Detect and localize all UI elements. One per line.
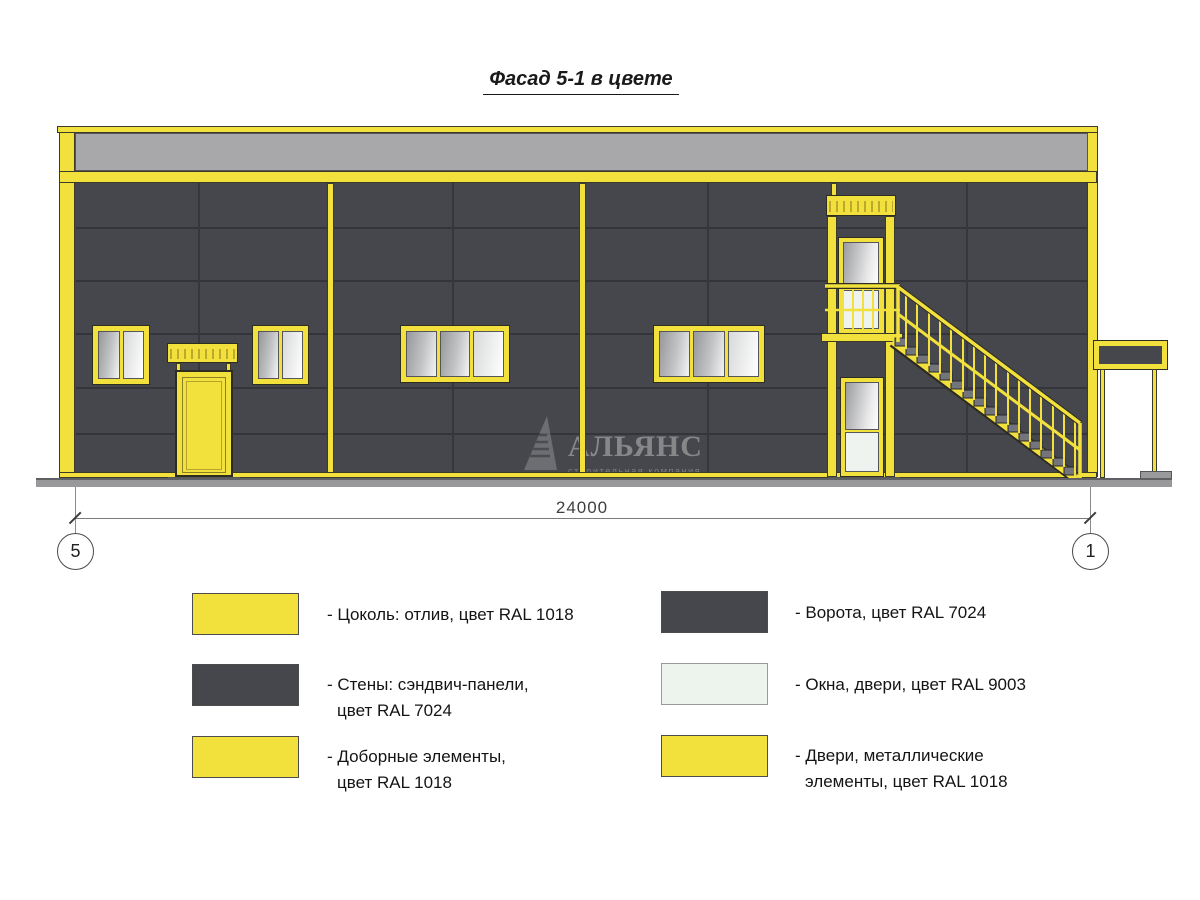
window-pane <box>693 331 724 377</box>
axis-bubble-1: 1 <box>1072 533 1109 570</box>
roof-cap <box>57 126 1098 133</box>
dimension-value: 24000 <box>482 498 682 518</box>
window-3pane <box>653 325 765 383</box>
legend-line: - Ворота, цвет RAL 7024 <box>795 600 986 626</box>
axis-bubble-5: 5 <box>57 533 94 570</box>
trim-strip <box>327 183 334 477</box>
legend-swatch-doors <box>661 735 768 777</box>
side-canopy <box>1094 341 1167 369</box>
side-canopy-post <box>1100 369 1105 478</box>
window-pane <box>123 331 145 379</box>
extension-line-left <box>75 487 76 533</box>
legend-swatch-windows <box>661 663 768 705</box>
axis-number: 1 <box>1085 541 1095 562</box>
entrance-door <box>175 370 233 477</box>
window-3pane <box>400 325 510 383</box>
extension-line-right <box>1090 487 1091 533</box>
entrance-canopy <box>167 343 238 363</box>
legend-label-windows: - Окна, двери, цвет RAL 9003 <box>795 672 1026 698</box>
legend-label-gates: - Ворота, цвет RAL 7024 <box>795 600 986 626</box>
window-pane <box>728 331 759 377</box>
legend-line: элементы, цвет RAL 1018 <box>805 769 1008 795</box>
window-pane <box>440 331 471 377</box>
trim-strip <box>579 183 586 477</box>
external-staircase <box>820 280 1090 490</box>
ground-line <box>36 478 1172 487</box>
window-pane <box>282 331 303 379</box>
window-pane <box>258 331 279 379</box>
window-pane <box>98 331 120 379</box>
canopy-ribs <box>170 349 235 359</box>
legend-label-doors: - Двери, металлические элементы, цвет RA… <box>795 743 1008 795</box>
legend-swatch-gates <box>661 591 768 633</box>
stair-mid-rail <box>898 314 1080 450</box>
dimension-line <box>75 518 1091 519</box>
legend-line: - Доборные элементы, <box>327 744 506 770</box>
window-pane <box>473 331 504 377</box>
tower-canopy <box>826 195 896 216</box>
page-title: Фасад 5-1 в цвете <box>483 68 678 95</box>
axis-number: 5 <box>70 541 80 562</box>
window-pane <box>406 331 437 377</box>
legend-line: - Окна, двери, цвет RAL 9003 <box>795 672 1026 698</box>
legend-line: цвет RAL 7024 <box>337 698 529 724</box>
drawing-sheet: Фасад 5-1 в цвете АЛЬЯНС строительная ко… <box>0 0 1200 900</box>
legend-line: - Цоколь: отлив, цвет RAL 1018 <box>327 602 574 628</box>
legend-line: - Стены: сэндвич-панели, <box>327 672 529 698</box>
legend-label-walls: - Стены: сэндвич-панели, цвет RAL 7024 <box>327 672 529 724</box>
window-2pane <box>92 325 150 385</box>
side-canopy-post <box>1152 369 1157 478</box>
page-title-wrap: Фасад 5-1 в цвете <box>381 68 781 95</box>
legend-label-plinth: - Цоколь: отлив, цвет RAL 1018 <box>327 602 574 628</box>
canopy-ribs <box>829 201 893 212</box>
legend-line: цвет RAL 1018 <box>337 770 506 796</box>
legend-swatch-walls <box>192 664 299 706</box>
legend-line: - Двери, металлические <box>795 743 1008 769</box>
legend-label-trim: - Доборные элементы, цвет RAL 1018 <box>327 744 506 796</box>
legend-swatch-trim <box>192 736 299 778</box>
window-2pane <box>252 325 309 385</box>
door-leaf-inner <box>186 381 222 470</box>
window-pane <box>659 331 690 377</box>
top-yellow-band <box>59 171 1097 183</box>
legend-swatch-plinth <box>192 593 299 635</box>
parapet-band <box>75 133 1088 171</box>
